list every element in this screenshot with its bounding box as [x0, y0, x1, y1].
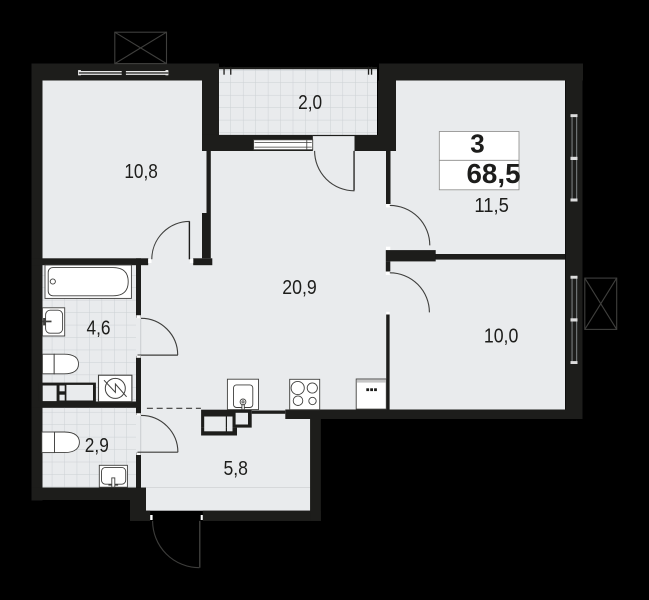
svg-text:2,0: 2,0 [298, 92, 322, 114]
svg-text:20,9: 20,9 [282, 277, 317, 299]
svg-text:4,6: 4,6 [87, 318, 111, 340]
svg-text:3: 3 [470, 129, 484, 159]
svg-text:10,8: 10,8 [124, 161, 158, 183]
svg-text:11,5: 11,5 [474, 195, 509, 217]
svg-text:10,0: 10,0 [484, 326, 519, 348]
svg-text:68,5: 68,5 [467, 158, 521, 189]
svg-text:5,8: 5,8 [223, 458, 248, 480]
svg-text:2,9: 2,9 [85, 435, 109, 457]
